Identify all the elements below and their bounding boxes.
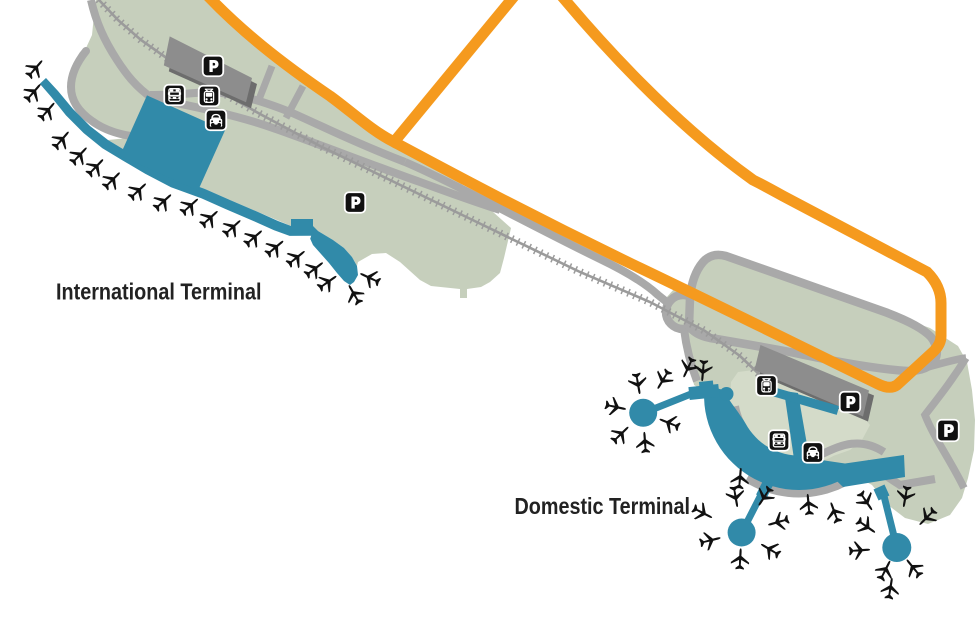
svg-text:Domestic Terminal: Domestic Terminal <box>515 493 691 519</box>
svg-text:International Terminal: International Terminal <box>56 279 262 305</box>
